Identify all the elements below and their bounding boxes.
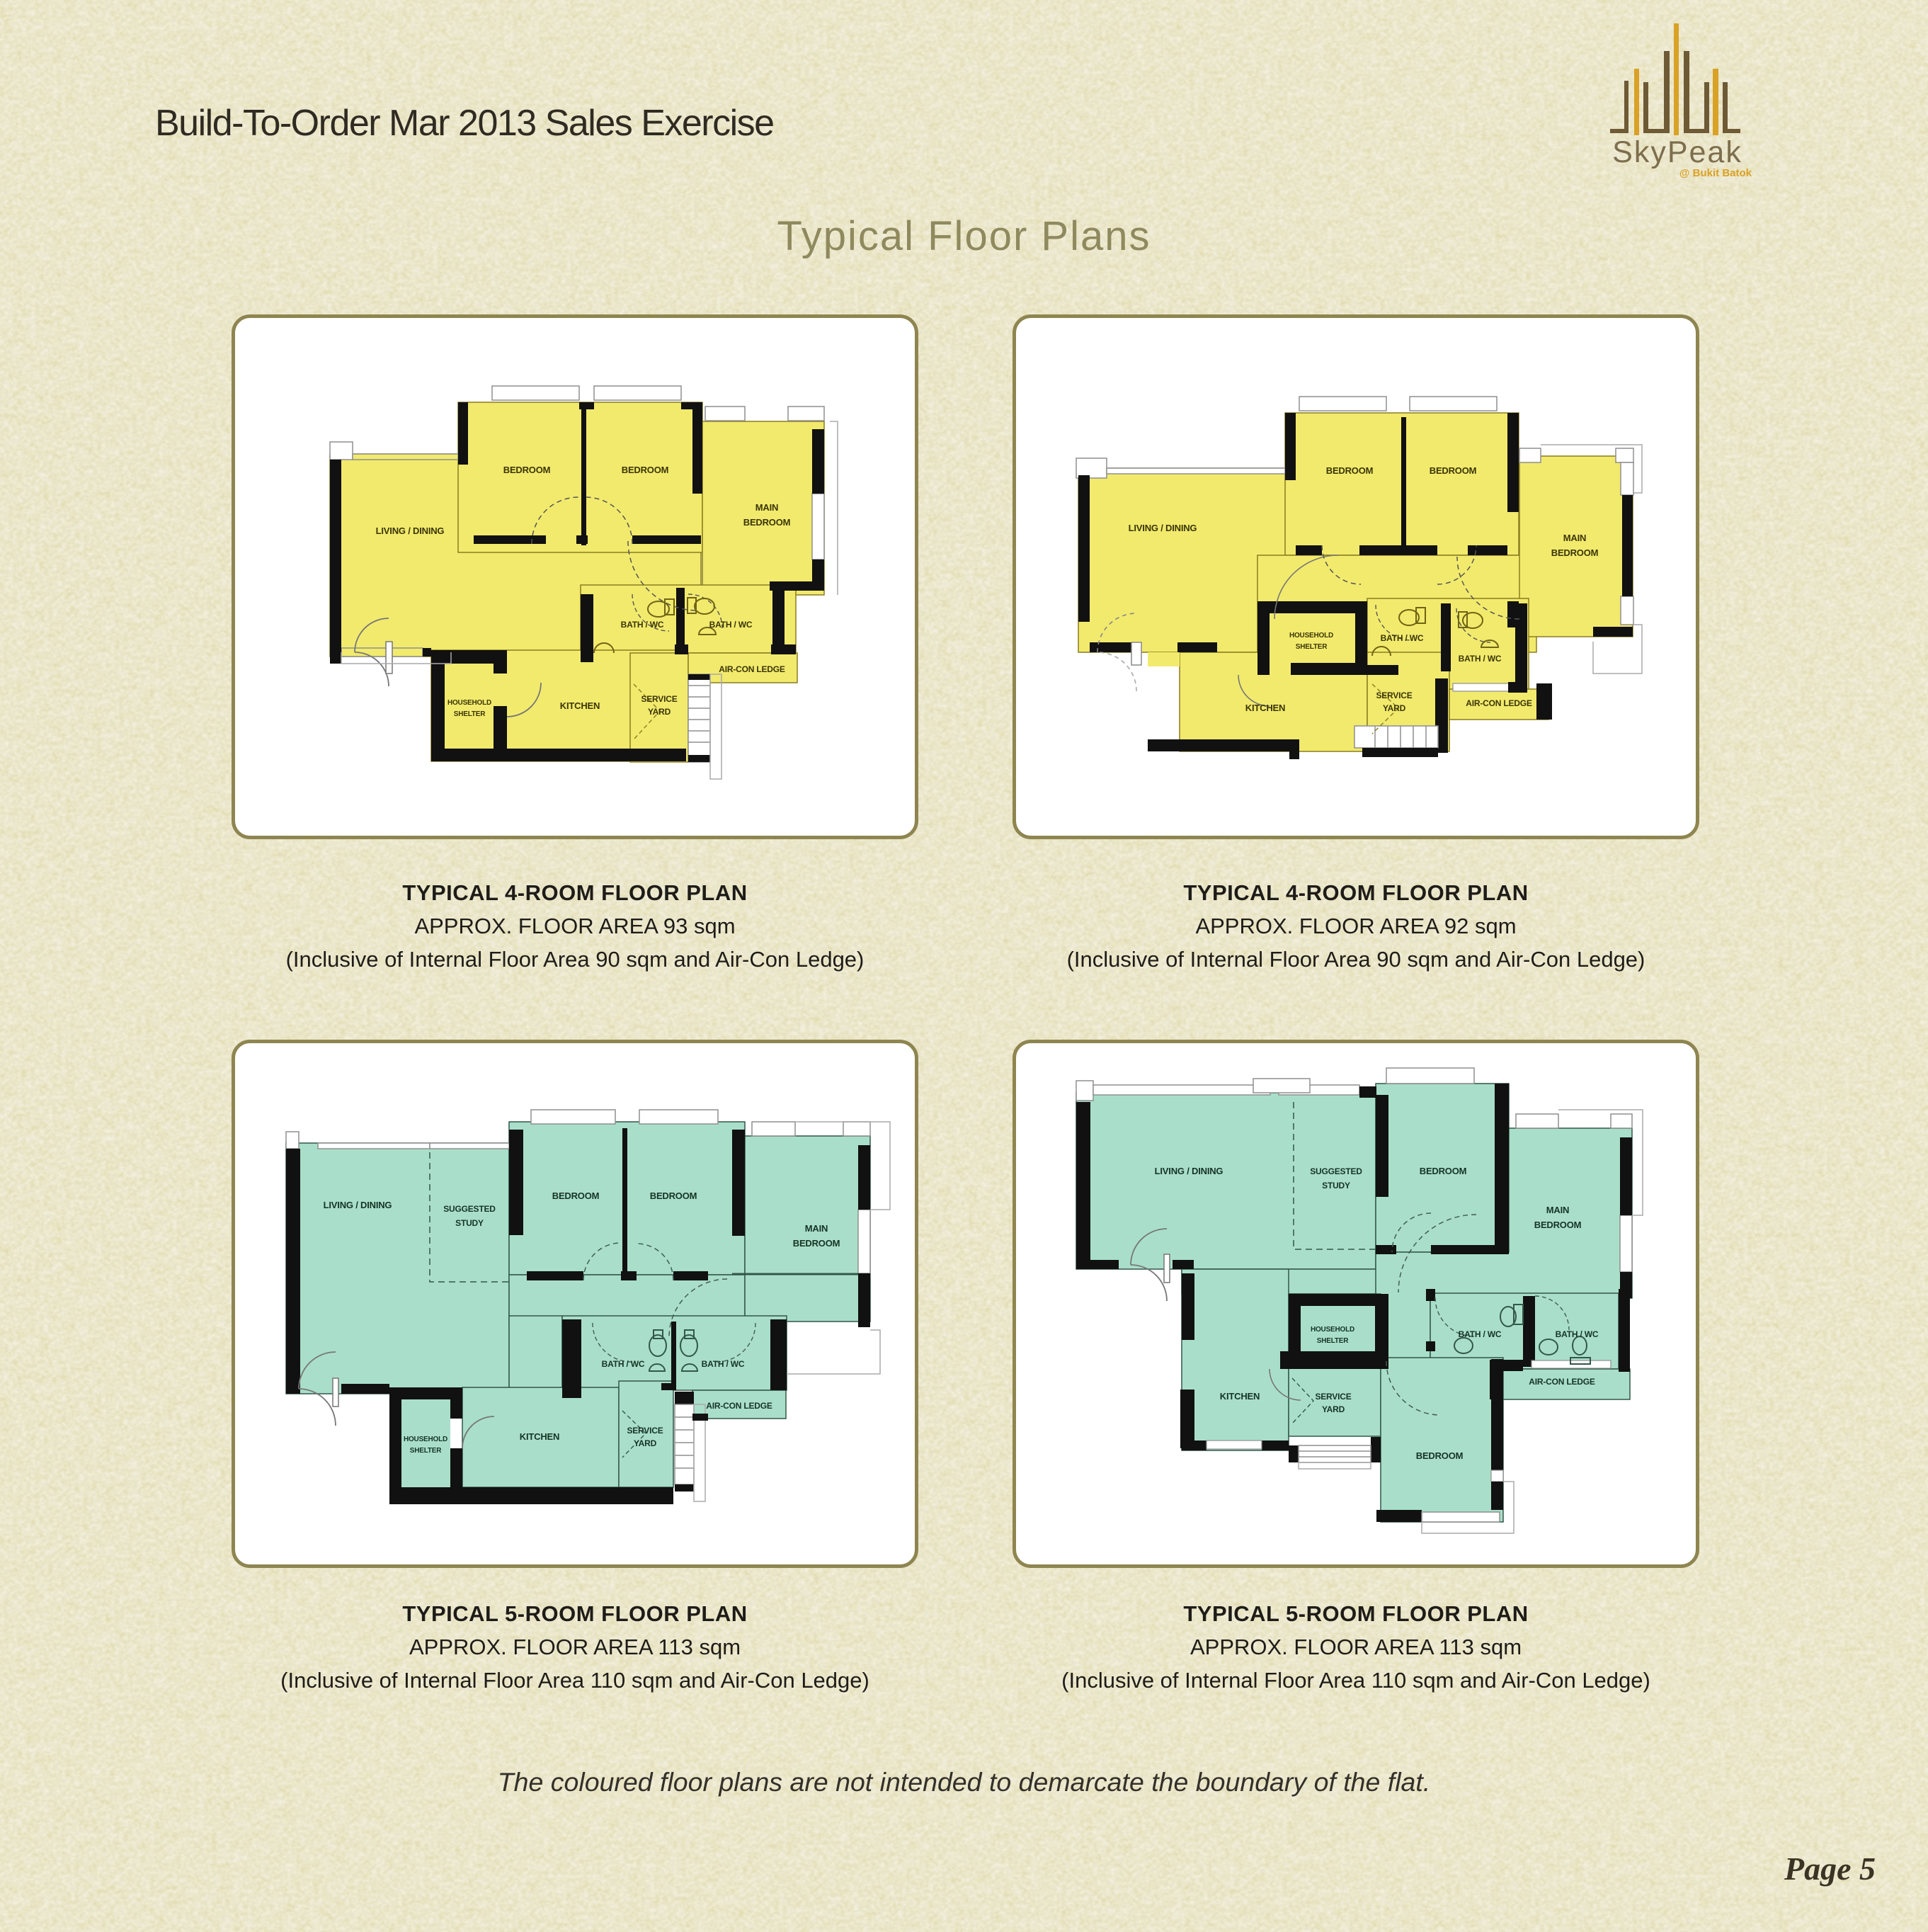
svg-text:YARD: YARD <box>1383 703 1406 713</box>
svg-text:MAIN: MAIN <box>1546 1205 1569 1215</box>
svg-text:HOUSEHOLD: HOUSEHOLD <box>404 1436 447 1443</box>
svg-text:MAIN: MAIN <box>1563 533 1586 543</box>
svg-text:BEDROOM: BEDROOM <box>793 1238 840 1249</box>
svg-text:STUDY: STUDY <box>455 1218 484 1228</box>
svg-text:HOUSEHOLD: HOUSEHOLD <box>447 699 491 707</box>
svg-text:BEDROOM: BEDROOM <box>552 1191 600 1201</box>
svg-text:@ Bukit Batok: @ Bukit Batok <box>1679 167 1752 179</box>
svg-text:MAIN: MAIN <box>755 502 778 513</box>
svg-text:BATH / WC: BATH / WC <box>702 1359 745 1369</box>
svg-text:AIR-CON LEDGE: AIR-CON LEDGE <box>1529 1377 1595 1387</box>
svg-text:BEDROOM: BEDROOM <box>743 517 791 528</box>
svg-text:BEDROOM: BEDROOM <box>1534 1220 1582 1230</box>
svg-text:LIVING / DINING: LIVING / DINING <box>324 1200 392 1210</box>
svg-text:HOUSEHOLD: HOUSEHOLD <box>1311 1326 1354 1334</box>
svg-text:SHELTER: SHELTER <box>1296 643 1328 651</box>
svg-text:BEDROOM: BEDROOM <box>1551 547 1599 558</box>
svg-text:YARD: YARD <box>1322 1404 1345 1414</box>
svg-text:BATH / WC: BATH / WC <box>1459 654 1502 664</box>
svg-text:BATH / WC: BATH / WC <box>1459 1329 1502 1339</box>
svg-text:AIR-CON LEDGE: AIR-CON LEDGE <box>706 1401 772 1411</box>
svg-text:BATH / WC: BATH / WC <box>1381 633 1424 643</box>
svg-text:BATH / WC: BATH / WC <box>602 1359 645 1369</box>
svg-text:HOUSEHOLD: HOUSEHOLD <box>1289 632 1333 640</box>
svg-text:SkyPeak: SkyPeak <box>1612 135 1742 169</box>
svg-text:BATH / WC: BATH / WC <box>1556 1329 1599 1339</box>
svg-text:SERVICE: SERVICE <box>1315 1392 1351 1402</box>
svg-text:BEDROOM: BEDROOM <box>650 1191 697 1201</box>
svg-text:SHELTER: SHELTER <box>410 1447 443 1455</box>
svg-text:YARD: YARD <box>634 1438 657 1448</box>
svg-text:BEDROOM: BEDROOM <box>622 465 669 475</box>
svg-text:AIR-CON LEDGE: AIR-CON LEDGE <box>1466 698 1532 708</box>
svg-text:SHELTER: SHELTER <box>1317 1337 1350 1345</box>
svg-text:SUGGESTED: SUGGESTED <box>443 1204 496 1214</box>
svg-text:SERVICE: SERVICE <box>627 1426 663 1436</box>
svg-text:SERVICE: SERVICE <box>641 694 677 704</box>
svg-text:AIR-CON LEDGE: AIR-CON LEDGE <box>719 664 785 674</box>
svg-text:BEDROOM: BEDROOM <box>1430 465 1477 476</box>
svg-text:BEDROOM: BEDROOM <box>503 465 551 475</box>
svg-text:BATH / WC: BATH / WC <box>709 620 753 630</box>
svg-text:YARD: YARD <box>648 707 671 717</box>
svg-text:KITCHEN: KITCHEN <box>560 700 600 711</box>
svg-text:KITCHEN: KITCHEN <box>1220 1391 1260 1402</box>
svg-text:STUDY: STUDY <box>1322 1181 1350 1191</box>
svg-text:LIVING / DINING: LIVING / DINING <box>1155 1166 1223 1176</box>
svg-text:LIVING / DINING: LIVING / DINING <box>376 525 445 536</box>
svg-text:SUGGESTED: SUGGESTED <box>1310 1166 1362 1176</box>
svg-text:SHELTER: SHELTER <box>454 710 486 718</box>
svg-text:KITCHEN: KITCHEN <box>1245 703 1285 713</box>
svg-text:MAIN: MAIN <box>805 1223 828 1234</box>
svg-text:BEDROOM: BEDROOM <box>1416 1450 1464 1461</box>
svg-text:BEDROOM: BEDROOM <box>1326 465 1374 476</box>
svg-text:BATH / WC: BATH / WC <box>621 620 664 630</box>
svg-text:KITCHEN: KITCHEN <box>520 1431 559 1442</box>
svg-text:BEDROOM: BEDROOM <box>1420 1166 1467 1176</box>
svg-text:LIVING / DINING: LIVING / DINING <box>1129 523 1197 533</box>
svg-text:SERVICE: SERVICE <box>1376 691 1412 700</box>
